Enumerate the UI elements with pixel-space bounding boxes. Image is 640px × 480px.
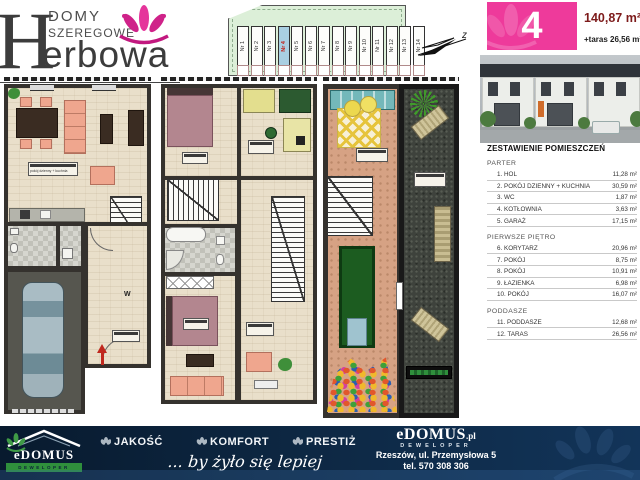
site-garden-plot (386, 65, 398, 76)
guest-bed (243, 89, 275, 113)
room-label: 12. TARAS (497, 331, 528, 338)
room-tag-chip (112, 330, 140, 342)
site-unit-label: Nr 4 (281, 41, 287, 52)
room-row: 10. POKÓJ16,07 m² (487, 289, 637, 301)
dining-table (16, 108, 58, 138)
wardrobe (166, 276, 214, 289)
footer-address: Rzeszów, ul. Przemysłowa 5 (352, 450, 520, 460)
footer-slogan: ... by żyło się lepiej (119, 452, 371, 471)
footer-bottom-strip (0, 470, 640, 480)
room-label: 1. HOL (497, 171, 517, 178)
stairs-line (168, 180, 218, 220)
site-unit: Nr 12 (386, 26, 398, 66)
site-unit: Nr 4 (278, 26, 290, 66)
shoe-cabinet (254, 380, 278, 389)
site-unit: Nr 5 (291, 26, 303, 66)
footer: eDOMUS DEWELOPER JAKOŚĆ KOMFORT PRESTIŻ … (0, 426, 640, 480)
site-garden-plot (291, 65, 303, 76)
render-window (564, 82, 574, 96)
room-area: 11,28 m² (613, 171, 637, 178)
edomus-logo-text: eDOMUS (4, 447, 84, 463)
room-area: 26,56 m² (612, 331, 637, 338)
room-area: 3,63 m² (616, 206, 637, 213)
room-row: 8. POKÓJ10,91 m² (487, 266, 637, 278)
room-label: 2. POKÓJ DZIENNY + KUCHNIA (497, 183, 590, 190)
brand-role: DEWELOPER (368, 443, 504, 449)
render-window (541, 82, 551, 96)
room-label: 10. POKÓJ (497, 291, 529, 298)
logo-underline (0, 82, 180, 83)
stairs-first (167, 179, 219, 221)
room-list-sections: PARTER1. HOL11,28 m²2. POKÓJ DZIENNY + K… (487, 160, 637, 340)
site-unit: Nr 11 (372, 26, 384, 66)
room-tag-label: pokój dzienny + kuchnia (29, 168, 77, 173)
room-row: 4. KOTŁOWNIA3,63 m² (487, 204, 637, 216)
dining-chair (40, 97, 52, 107)
compass-label: z (461, 30, 467, 41)
unit-number: 4 (521, 7, 542, 45)
dimension-bar (4, 77, 151, 81)
room-section-header: PARTER (487, 160, 637, 167)
room-area: 20,96 m² (612, 245, 637, 252)
site-garden-plot (318, 65, 330, 76)
car (22, 282, 64, 398)
armchair (246, 352, 272, 372)
armchair (90, 166, 115, 185)
leaf-bullet-icon (100, 436, 111, 446)
site-unit-label: Nr 6 (308, 41, 314, 51)
room-area: 10,91 m² (612, 268, 637, 275)
unit-terrace-area: +taras 26,56 m² (584, 35, 640, 44)
room-area: 30,59 m² (612, 183, 637, 190)
site-garden-plot (332, 65, 344, 76)
site-units: Nr 1Nr 2Nr 3Nr 4Nr 5Nr 6Nr 7Nr 8Nr 9Nr 1… (237, 26, 425, 64)
dimension-bar (161, 77, 317, 81)
render-window (594, 82, 604, 96)
pouf (344, 100, 361, 117)
site-unit: Nr 7 (318, 26, 330, 66)
coffee-table (186, 354, 214, 367)
site-garden-plot (372, 65, 384, 76)
leaf-bullet-icon (292, 436, 303, 446)
room-row: 12. TARAS26,56 m² (487, 328, 637, 340)
room-schedule: ZESTAWIENIE POMIESZCZEŃ PARTER1. HOL11,2… (487, 144, 637, 340)
terrace-door (396, 282, 403, 310)
render-front-door (538, 101, 544, 117)
room-area: 1,87 m² (616, 194, 637, 201)
room-area: 12,68 m² (612, 319, 637, 326)
render-window (488, 82, 498, 96)
room-row: 3. WC1,87 m² (487, 192, 637, 204)
render-tree (630, 111, 640, 127)
brand-tld: .pl (466, 431, 476, 441)
stairs-line (272, 197, 304, 301)
site-plan: Nr 1Nr 2Nr 3Nr 4Nr 5Nr 6Nr 7Nr 8Nr 9Nr 1… (228, 5, 406, 76)
site-unit-label: Nr 5 (294, 41, 300, 51)
room-tag-bar (114, 332, 138, 335)
room-row: 7. POKÓJ8,75 m² (487, 254, 637, 266)
pouf (360, 96, 377, 113)
site-unit-label: Nr 9 (348, 41, 354, 51)
stairs-line (328, 177, 372, 235)
value-komfort: KOMFORT (210, 436, 269, 448)
wardrobe (279, 89, 311, 113)
site-unit-label: Nr 10 (362, 39, 368, 52)
room-label: 4. KOTŁOWNIA (497, 206, 542, 213)
site-unit-label: Nr 13 (402, 39, 408, 52)
room-tag-chip (183, 318, 209, 330)
site-garden-plot (345, 65, 357, 76)
room-label: 6. KORYTARZ (497, 245, 538, 252)
site-unit: Nr 6 (305, 26, 317, 66)
room-label: 3. WC (497, 194, 515, 201)
site-unit-label: Nr 2 (254, 41, 260, 51)
cooktop (20, 210, 30, 219)
dining-chair (40, 139, 52, 149)
site-unit: Nr 9 (345, 26, 357, 66)
value-prestiz: PRESTIŻ (306, 436, 356, 448)
stairs-to-attic (271, 196, 305, 302)
room-tag-chip (248, 140, 274, 154)
room-section-header: PODDASZE (487, 308, 637, 315)
site-unit-label: Nr 11 (375, 39, 381, 52)
room-tag-bar (185, 320, 207, 323)
value-jakosc: JAKOŚĆ (114, 436, 163, 448)
site-garden-plot (251, 65, 263, 76)
room-label: 5. GARAŻ (497, 218, 526, 225)
printer (296, 136, 305, 145)
bed-headboard (167, 88, 213, 95)
room-label: 8. POKÓJ (497, 268, 525, 275)
lotus-flower-icon (116, 2, 172, 50)
cabinet (128, 110, 144, 146)
site-unit: Nr 2 (251, 26, 263, 66)
site-unit: Nr 13 (399, 26, 411, 66)
render-roof (480, 64, 640, 77)
site-unit-label: Nr 12 (389, 39, 395, 52)
room-tag-chip (356, 148, 388, 162)
bath-sink (216, 236, 225, 245)
wc-sink (10, 228, 19, 235)
site-garden-plot (264, 65, 276, 76)
room-label: 7. POKÓJ (497, 257, 525, 264)
desk (283, 118, 311, 152)
window-opening (92, 84, 116, 91)
site-unit-label: Nr 1 (240, 41, 246, 51)
render-garage-door (547, 103, 573, 126)
room-tag-bar (416, 174, 444, 177)
north-arrow-icon: z (412, 24, 474, 68)
room-schedule-title: ZESTAWIENIE POMIESZCZEŃ (487, 144, 637, 153)
site-garden-plot (359, 65, 371, 76)
room-row: 11. PODDASZE12,68 m² (487, 317, 637, 329)
room-tag-chip (182, 152, 208, 164)
planter-box (406, 366, 452, 379)
brand-main: eDOMUS (396, 426, 466, 443)
desk-chair (265, 127, 277, 139)
site-garden-plot (399, 65, 411, 76)
toilet (216, 254, 224, 265)
entrance-label: W (124, 291, 131, 298)
room-tag-bar (358, 150, 386, 153)
bathtub (166, 227, 206, 242)
tv-unit (100, 114, 113, 144)
brand-name: eDOMUS.pl (368, 426, 504, 444)
room-row: 9. ŁAZIENKA6,98 m² (487, 278, 637, 290)
room-section-header: PIERWSZE PIĘTRO (487, 234, 637, 241)
room-row: 5. GARAŻ17,15 m² (487, 215, 637, 227)
room-row: 2. POKÓJ DZIENNY + KUCHNIA30,59 m² (487, 181, 637, 193)
bed (167, 95, 213, 147)
render-car (592, 121, 620, 134)
site-unit-label: Nr 8 (335, 41, 341, 51)
dining-chair (20, 139, 32, 149)
render-window (510, 82, 520, 96)
site-garden-plot (278, 65, 290, 76)
chevron-rug (337, 108, 381, 148)
render-garage-door (494, 103, 520, 126)
wall (56, 224, 60, 268)
room-area: 6,98 m² (616, 280, 637, 287)
room-tag-bar (184, 154, 206, 157)
leaf-bullet-icon (196, 436, 207, 446)
room-tag-chip (414, 172, 446, 187)
entrance-arrow-icon (97, 344, 107, 353)
sofa (64, 100, 86, 154)
entrance-arrow-stem (101, 352, 104, 365)
stairs-attic (327, 176, 373, 236)
dimension-bar (323, 77, 459, 81)
render-bush (578, 117, 590, 129)
site-unit-label: Nr 7 (321, 41, 327, 51)
kitchen-sink (40, 210, 51, 219)
logo-line1: DOMY (48, 8, 101, 25)
room-area: 17,15 m² (612, 218, 637, 225)
room-tag-chip: pokój dzienny + kuchnia (28, 162, 78, 176)
window-opening (30, 84, 54, 91)
planter-plants (410, 370, 448, 375)
sun-lounger-folded (434, 206, 451, 262)
site-unit: Nr 10 (359, 26, 371, 66)
render-bush (524, 117, 536, 129)
dining-chair (20, 97, 32, 107)
room-area: 16,07 m² (612, 291, 637, 298)
unit-area: 140,87 m² (584, 11, 640, 25)
room-tag-bar (248, 324, 272, 327)
render-window (616, 82, 626, 96)
site-unit-label: Nr 3 (267, 41, 273, 51)
unit-number-badge: 4 (487, 2, 577, 50)
building-render (480, 55, 640, 143)
room-tag-chip (246, 322, 274, 336)
room-label: 11. PODDASZE (497, 319, 542, 326)
toilet (10, 243, 18, 253)
room-label: 9. ŁAZIENKA (497, 280, 534, 287)
site-unit: Nr 8 (332, 26, 344, 66)
room-area: 8,75 m² (616, 257, 637, 264)
site-unit: Nr 3 (264, 26, 276, 66)
render-bush (480, 111, 496, 127)
site-unit: Nr 1 (237, 26, 249, 66)
plant (278, 358, 292, 371)
room-row: 1. HOL11,28 m² (487, 169, 637, 181)
washer (62, 248, 73, 259)
pool-table-cue-end (347, 318, 367, 346)
site-gardens (237, 65, 425, 75)
site-garden-plot (305, 65, 317, 76)
room-tag-bar (250, 142, 272, 145)
room-tag-bar (30, 164, 76, 167)
site-garden-plot (237, 65, 249, 76)
sofa (170, 376, 224, 396)
garage-door (12, 409, 74, 413)
room-row: 6. KORYTARZ20,96 m² (487, 243, 637, 255)
